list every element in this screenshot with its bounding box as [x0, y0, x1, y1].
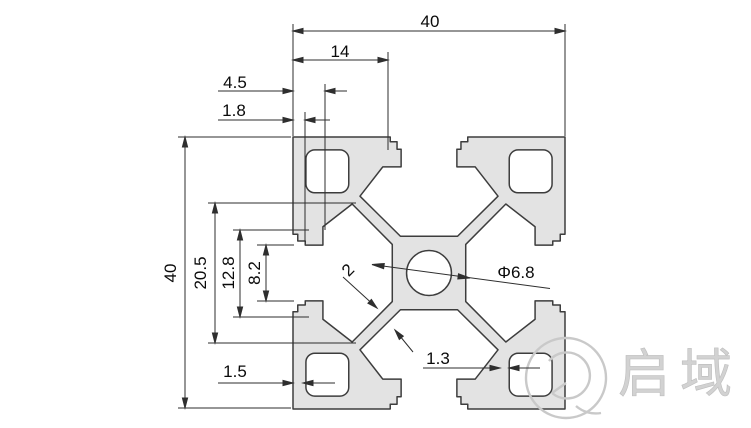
dim-label-top-width: 40 [421, 12, 440, 31]
dim-label-notch-spacing: 12.8 [219, 256, 238, 289]
arrowhead-icon [212, 203, 217, 213]
arrowhead-icon [325, 88, 335, 93]
arrowhead-icon [283, 88, 293, 93]
arrowhead-icon [372, 264, 384, 269]
arrowhead-icon [182, 398, 187, 408]
dim-label-notch-depth: 1.8 [222, 101, 246, 120]
corner-bore-bottom-left [306, 353, 349, 396]
dim-label-cavity-width: 20.5 [191, 256, 210, 289]
drawing-canvas: 启域 [0, 0, 751, 428]
dim-label-lip-depth: 4.5 [223, 73, 247, 92]
center-hole [407, 251, 452, 296]
arrowhead-icon [283, 380, 293, 385]
dim-label-side-height: 40 [161, 264, 180, 283]
dim-notch-spacing [237, 230, 242, 317]
arrowhead-icon [212, 333, 217, 343]
dim-label-wall-thickness: 1.5 [223, 362, 247, 381]
arrowhead-icon [237, 230, 242, 240]
dim-label-slot-opening: 8.2 [245, 261, 264, 285]
dim-label-slot-position: 14 [331, 42, 350, 61]
dim-side-height [182, 137, 187, 408]
dim-label-lip-thickness: 1.3 [426, 349, 450, 368]
arrowhead-icon [263, 291, 268, 301]
arrowhead-icon [283, 117, 293, 122]
dim-slot-opening [263, 245, 268, 301]
arrowhead-icon [305, 117, 315, 122]
arrowhead-icon [293, 57, 303, 62]
corner-bore-top-left [306, 150, 349, 193]
dim-label-web-thickness: 2 [338, 260, 358, 280]
arrowhead-icon [182, 137, 187, 147]
watermark-brand-text: 启域 [618, 346, 742, 404]
arrowhead-icon [378, 57, 388, 62]
technical-drawing: 启域 [0, 0, 751, 428]
arrowhead-icon [293, 28, 303, 33]
arrowhead-icon [263, 245, 268, 255]
arrowhead-icon [555, 28, 565, 33]
dim-cavity-width [212, 203, 217, 343]
arrowhead-icon [237, 307, 242, 317]
dim-label-center-hole: Φ6.8 [497, 263, 534, 282]
corner-bore-top-right [509, 150, 552, 193]
